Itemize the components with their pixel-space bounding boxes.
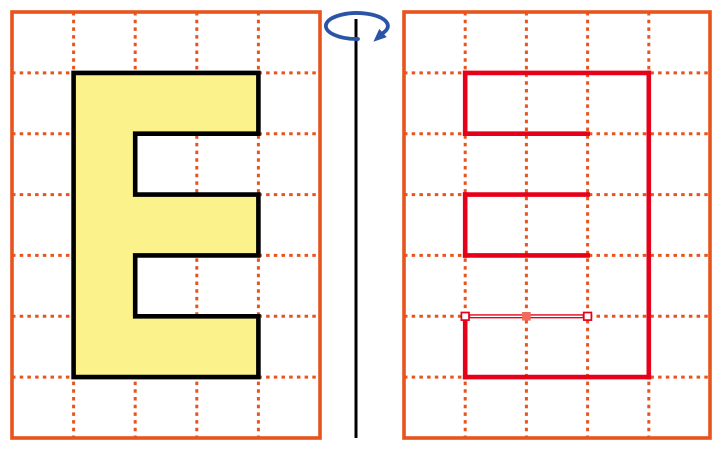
mirror-trace [465, 73, 649, 377]
worksheet [0, 0, 728, 461]
reflection-grid-panel-border[interactable] [404, 12, 710, 438]
letter-e-shape [74, 73, 259, 377]
reflection-diagram [0, 0, 728, 461]
selected-segment[interactable] [461, 313, 591, 321]
reflection-grid-panel [404, 12, 710, 438]
segment-midpoint-handle[interactable] [523, 313, 531, 321]
segment-endpoint-handle[interactable] [584, 313, 592, 321]
segment-endpoint-handle[interactable] [461, 313, 469, 321]
